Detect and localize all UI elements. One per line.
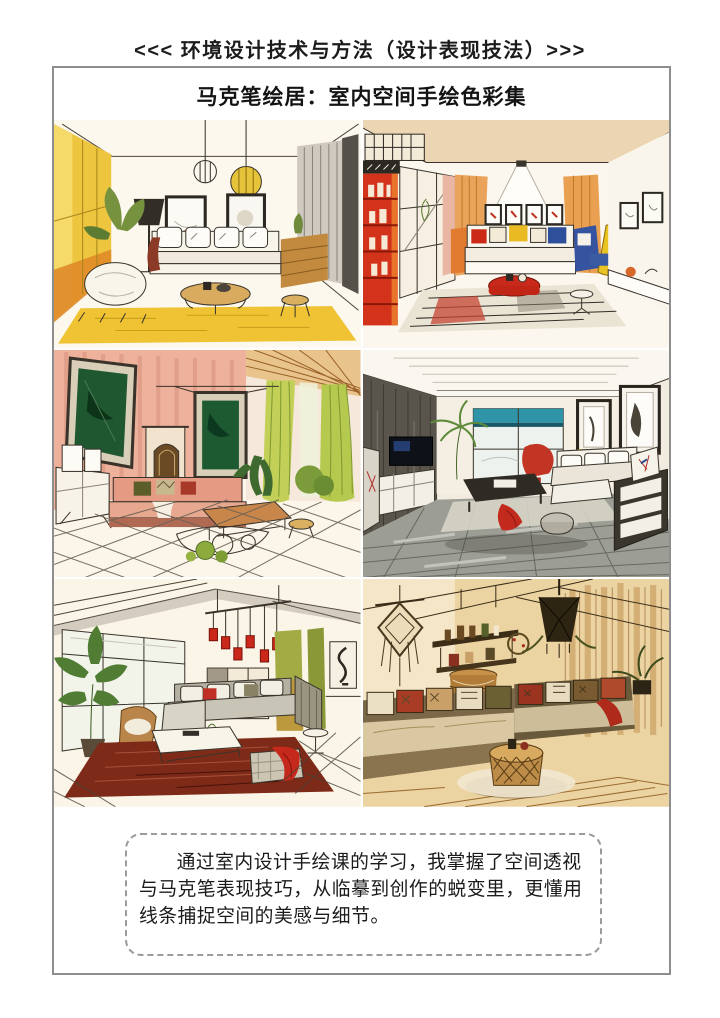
sketch-pink-wall-room xyxy=(54,350,361,578)
sketch-red-bookshelf-room-image xyxy=(363,120,670,348)
page-title: 马克笔绘居：室内空间手绘色彩集 xyxy=(54,81,669,111)
sketch-pink-wall-room-image xyxy=(54,350,361,578)
sketch-window-room-red-pendants-image xyxy=(54,579,361,807)
sketch-boho-wood-room xyxy=(363,579,670,807)
caption-box: 通过室内设计手绘课的学习，我掌握了空间透视与马克笔表现技巧，从临摹到创作的蜕变里… xyxy=(125,833,602,956)
sketch-yellow-living-room-image xyxy=(54,120,361,348)
content-frame: 马克笔绘居：室内空间手绘色彩集 xyxy=(52,66,671,975)
page-header: <<< 环境设计技术与方法（设计表现技法）>>> xyxy=(0,34,720,63)
sketch-gray-modern-room xyxy=(363,350,670,578)
sketch-boho-wood-room-image xyxy=(363,579,670,807)
sketch-yellow-living-room xyxy=(54,120,361,348)
caption-text: 通过室内设计手绘课的学习，我掌握了空间透视与马克笔表现技巧，从临摹到创作的蜕变里… xyxy=(139,848,588,929)
sketch-window-room-red-pendants xyxy=(54,579,361,807)
sketch-red-bookshelf-room xyxy=(363,120,670,348)
sketch-gray-modern-room-image xyxy=(363,350,670,578)
sketch-gallery xyxy=(54,120,669,807)
